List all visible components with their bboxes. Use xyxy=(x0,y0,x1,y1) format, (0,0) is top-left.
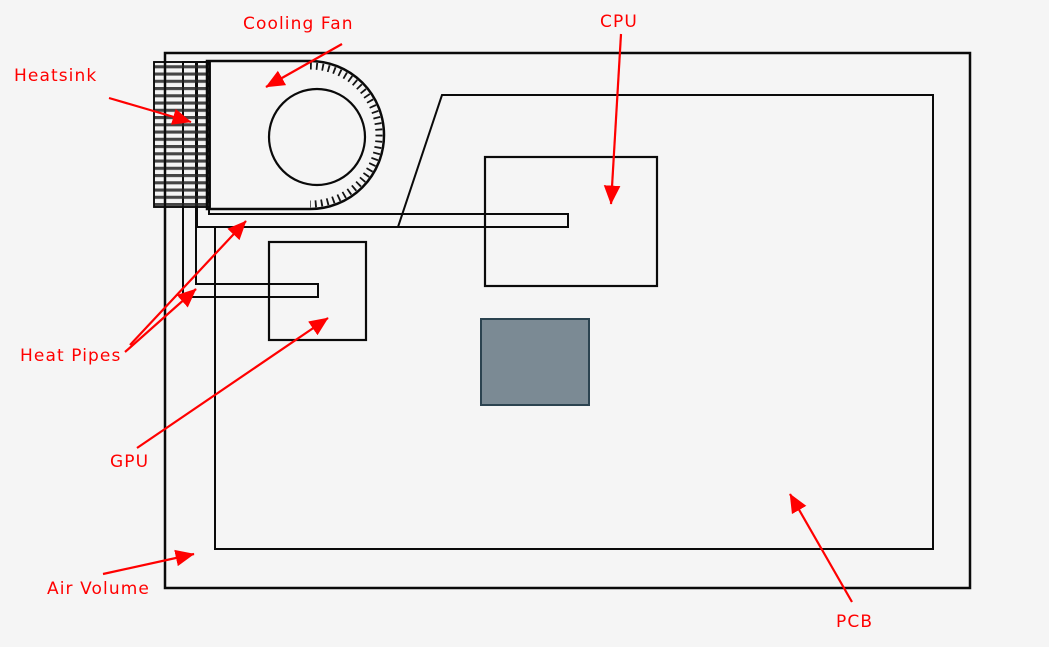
cooling-fan-arrow xyxy=(266,44,342,87)
gpu-label: GPU xyxy=(110,452,149,472)
heat-pipes-arrow-lower xyxy=(125,289,196,352)
diagram-canvas: Heatsink Cooling Fan CPU Heat Pipes GPU … xyxy=(0,0,1049,647)
heat-pipes-label: Heat Pipes xyxy=(20,346,121,366)
air-volume-label: Air Volume xyxy=(47,579,150,599)
cpu-label: CPU xyxy=(600,12,638,32)
cooling-fan-label: Cooling Fan xyxy=(243,14,354,34)
heatsink-label: Heatsink xyxy=(14,66,97,86)
cooling-system-diagram: Heatsink Cooling Fan CPU Heat Pipes GPU … xyxy=(0,0,1049,647)
pcb-label: PCB xyxy=(836,612,873,632)
heatsink-fins xyxy=(154,62,210,207)
cpu-arrow xyxy=(611,34,621,204)
cpu-region xyxy=(485,157,657,286)
fan-hub xyxy=(269,89,365,185)
fan-blade-serrations xyxy=(310,66,379,204)
cooling-fan-housing xyxy=(207,61,384,209)
pcb-cutout xyxy=(481,319,589,405)
air-volume-arrow xyxy=(103,554,194,574)
